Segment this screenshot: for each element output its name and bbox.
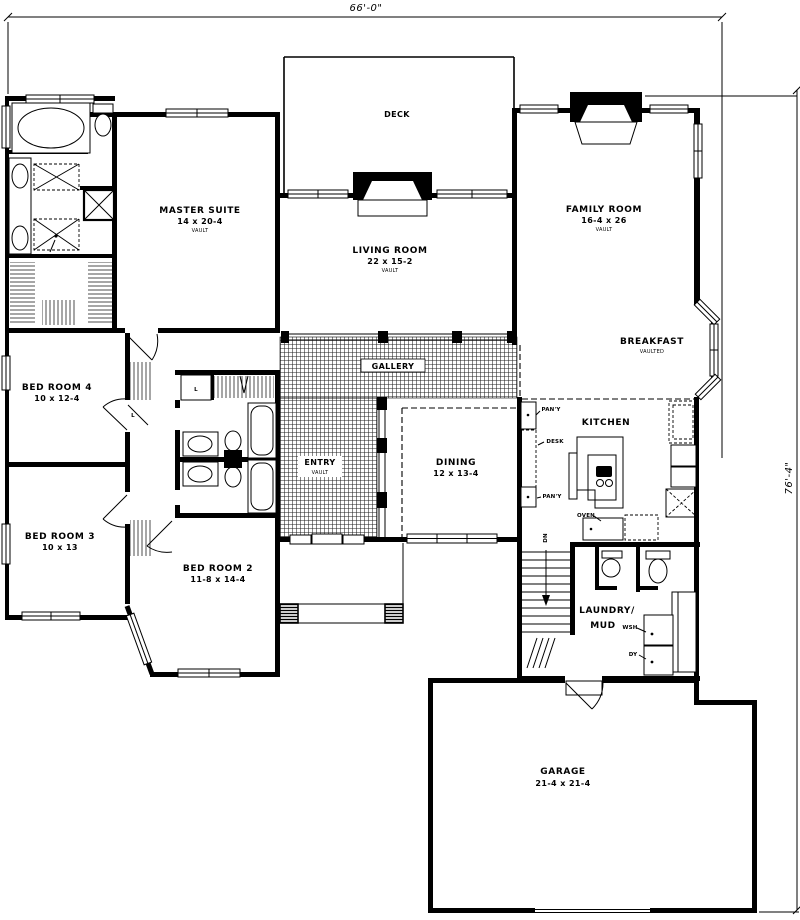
master-bath-fixtures: [9, 103, 114, 325]
window: [126, 613, 151, 665]
pantry-lower-label: PAN'Y: [542, 494, 562, 500]
floor-plan: 66'-0" 76'-4": [0, 0, 800, 920]
bedroom2-size: 11-8 x 14-4: [190, 575, 245, 584]
stairs-down-label: DN: [543, 533, 549, 543]
living-room-label: LIVING ROOM: [352, 246, 427, 256]
bedroom2-label: BED ROOM 2: [183, 564, 253, 574]
wall-oven: [671, 467, 696, 487]
sink-icon: [602, 559, 620, 577]
linen2-label: L: [131, 413, 135, 419]
family-room-label: FAMILY ROOM: [566, 205, 642, 215]
sink-icon: [188, 466, 212, 482]
hall-bath-fixtures: [181, 375, 276, 513]
porch-pillar: [385, 604, 403, 623]
window: [695, 374, 720, 399]
washer-icon: [644, 615, 673, 645]
garage-entry-door: [566, 683, 603, 709]
window: [694, 124, 702, 178]
washer-label: WSH: [622, 625, 637, 631]
closet-rod: [130, 520, 152, 556]
bedroom3-label: BED ROOM 3: [25, 532, 95, 542]
dining-size: 12 x 13-4: [433, 469, 479, 478]
family-room-size: 16-4 x 26: [581, 216, 627, 225]
oven-label: OVEN: [577, 513, 595, 519]
wall-oven: [671, 445, 696, 466]
pantry-upper-label: PAN'Y: [541, 407, 561, 413]
master-door: [127, 334, 158, 360]
skylight-icon: [34, 164, 79, 190]
dryer-label: DY: [629, 652, 638, 658]
entry-door-assembly: [290, 534, 364, 544]
bedroom3-size: 10 x 13: [42, 543, 78, 552]
dining-label: DINING: [436, 458, 476, 468]
breakfast-note: VAULTED: [640, 349, 664, 355]
window: [650, 105, 688, 113]
cooktop-icon: [596, 466, 613, 487]
master-suite-size: 14 x 20-4: [177, 217, 223, 226]
toilet-icon: [225, 467, 241, 487]
oven-cabinet: [583, 518, 623, 540]
master-suite-note: VAULT: [192, 228, 209, 234]
closet-rod: [10, 262, 35, 324]
sink-icon: [12, 226, 28, 250]
refrigerator-icon: [669, 401, 697, 443]
window: [2, 356, 10, 390]
staircase: [522, 550, 570, 668]
tall-cabinet: [672, 592, 696, 672]
window: [26, 95, 94, 103]
hall-closets: [128, 362, 152, 556]
breakfast-label: BREAKFAST: [620, 337, 684, 347]
entry-label: ENTRY: [304, 458, 335, 467]
sink-icon: [188, 436, 212, 452]
height-dimension: 76'-4": [784, 461, 795, 494]
laundry-label: LAUNDRY/: [579, 606, 635, 616]
deck-label: DECK: [384, 110, 410, 119]
family-room-note: VAULT: [596, 227, 613, 233]
window: [22, 612, 80, 620]
window: [178, 669, 240, 677]
linen1-label: L: [194, 387, 198, 393]
laundry-label2: MUD: [590, 621, 616, 631]
toilet-icon: [646, 551, 670, 559]
window: [694, 299, 719, 324]
bedroom4-size: 10 x 12-4: [34, 394, 80, 403]
kitchen-island: [569, 437, 623, 508]
toilet-icon: [225, 431, 241, 451]
sink-icon: [12, 164, 28, 188]
bedroom4-label: BED ROOM 4: [22, 383, 92, 393]
floor-plan-drawing: 66'-0" 76'-4": [0, 0, 800, 920]
closet-rod: [88, 262, 114, 324]
living-room-size: 22 x 15-2: [367, 257, 412, 266]
window: [710, 324, 718, 376]
living-room-note: VAULT: [382, 268, 399, 274]
shower-pan: [34, 219, 79, 250]
kitchen-label: KITCHEN: [582, 418, 630, 428]
width-dimension: 66'-0": [349, 3, 382, 14]
bedroom3-door: [103, 495, 127, 527]
closet-rod: [214, 376, 274, 398]
family-room-fireplace: [570, 92, 642, 144]
desk-label: DESK: [546, 439, 564, 445]
shower-stall: [84, 190, 114, 220]
porch-outline: [278, 543, 403, 623]
master-suite-label: MASTER SUITE: [159, 206, 240, 216]
living-room-fireplace: [353, 172, 432, 216]
entry-note: VAULT: [312, 470, 329, 476]
closet-rod: [42, 300, 76, 325]
bedroom4-door: [103, 399, 127, 430]
shower-label: SHWR: [44, 254, 61, 260]
window: [166, 109, 228, 117]
corner-cabinet: [666, 489, 697, 517]
dryer-icon: [644, 646, 673, 675]
window: [2, 106, 10, 148]
window: [2, 524, 10, 564]
porch-pillar: [280, 604, 298, 623]
closet-rod: [130, 362, 152, 400]
garage-size: 21-4 x 21-4: [535, 779, 590, 788]
window: [288, 190, 348, 198]
garage-label: GARAGE: [540, 767, 585, 777]
window: [407, 534, 497, 543]
gallery-label: GALLERY: [372, 362, 415, 371]
window: [437, 190, 507, 198]
toilet-icon: [93, 104, 113, 113]
window: [520, 105, 558, 113]
